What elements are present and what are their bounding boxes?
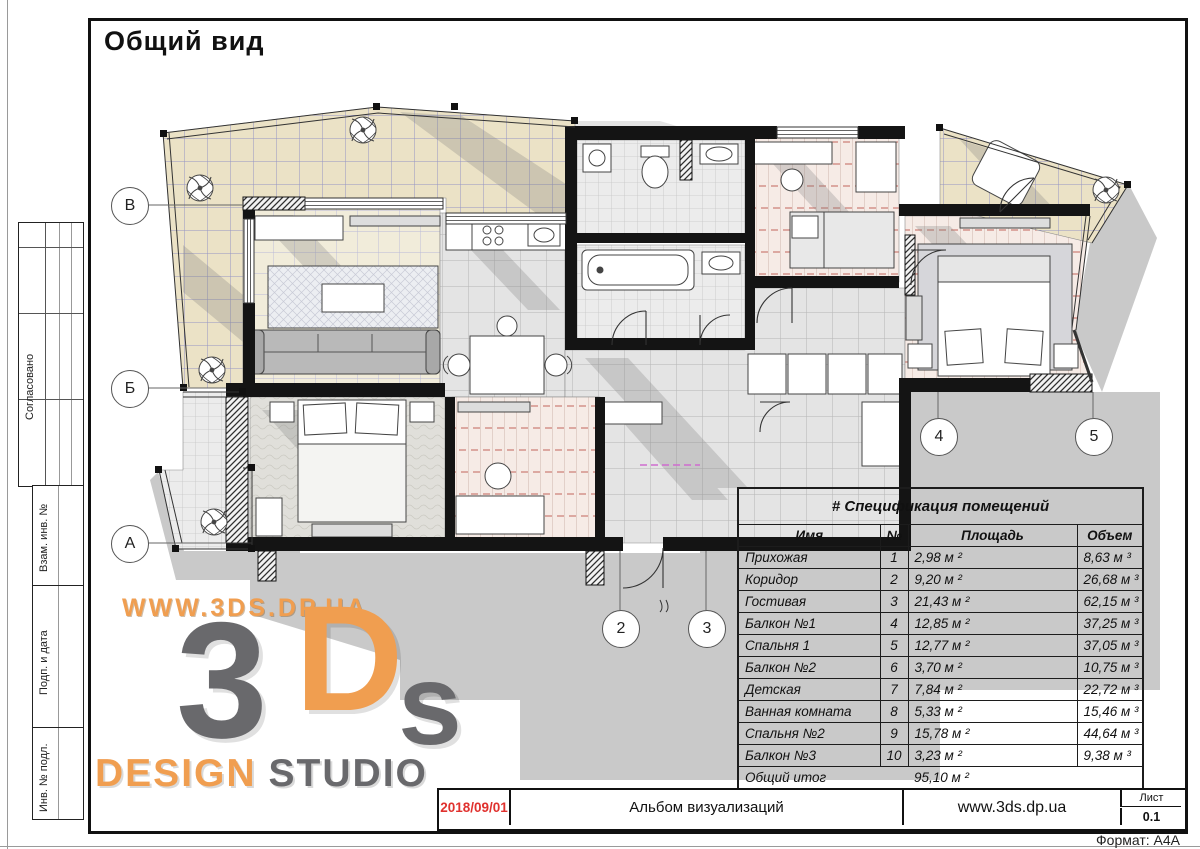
bedroom2-bed: [938, 256, 1050, 376]
logo-s: s: [398, 648, 462, 763]
room-specification-table: # Спецификация помещений Имя № Площадь О…: [737, 487, 1144, 790]
washing-machine: [583, 144, 611, 172]
table-row: Спальня №2915,78 м ²44,64 м ³: [738, 723, 1143, 745]
sheet-number: 0.1: [1120, 808, 1181, 825]
table-row: Спальня 1512,77 м ²37,05 м ³: [738, 635, 1143, 657]
logo-studio-word: STUDIO: [269, 752, 428, 795]
table-row: Балкон №3103,23 м ²9,38 м ³: [738, 745, 1143, 767]
kids-chair: [781, 169, 803, 191]
bedroom1-bed: [298, 400, 406, 522]
hall-wardrobe: [748, 354, 902, 394]
grid-marker-row-v: В: [111, 187, 149, 225]
title-block-album: Альбом визуализаций: [509, 790, 902, 825]
logo-3: 3: [176, 598, 268, 763]
logo-d: D: [295, 583, 403, 733]
bedroom1-bench: [312, 524, 392, 537]
nightstand-left: [908, 344, 932, 368]
table-total-row: Общий итог 95,10 м ²: [738, 767, 1143, 790]
total-area: 95,10 м ²: [908, 767, 1077, 790]
table-row: Балкон №263,70 м ²10,75 м ³: [738, 657, 1143, 679]
hall-shoe-rack: [604, 402, 662, 424]
table-row: Гостивая321,43 м ²62,15 м ³: [738, 591, 1143, 613]
logo-design-word: DESIGN: [95, 752, 257, 795]
bedroom2-shelf: [960, 218, 1050, 228]
table-row: Коридор29,20 м ²26,68 м ³: [738, 569, 1143, 591]
bedroom2-dresser: [906, 296, 922, 340]
washbasin: [700, 144, 738, 164]
bedroom1-dresser: [256, 498, 282, 536]
format-label: Формат: А4А: [980, 832, 1180, 848]
bedroom1-nightstand-l: [270, 402, 294, 422]
sink: [528, 224, 560, 246]
bathtub: [582, 250, 694, 290]
col-header-volume: Объем: [1077, 525, 1143, 547]
desk-chair: [485, 463, 511, 489]
table-row: Балкон №1412,85 м ²37,25 м ³: [738, 613, 1143, 635]
hall-cabinet: [862, 402, 902, 466]
tv-cabinet: [255, 216, 343, 240]
logo-studio-line: DESIGNSTUDIO: [95, 752, 428, 796]
sofa: [250, 330, 440, 374]
table-row: Детская77,84 м ²22,72 м ³: [738, 679, 1143, 701]
toilet: [641, 146, 669, 188]
col-header-area: Площадь: [908, 525, 1077, 547]
title-block: 2018/09/01 Альбом визуализаций www.3ds.d…: [437, 788, 1187, 831]
wall-shelf: [458, 402, 530, 412]
kids-desk: [754, 142, 832, 164]
grid-marker-col-5: 5: [1075, 418, 1113, 456]
page-title: Общий вид: [104, 26, 265, 57]
sheet-label: Лист: [1120, 790, 1181, 807]
col-header-num: №: [880, 525, 908, 547]
stamp-inv-label: Инв. № подл.: [38, 743, 50, 812]
grid-marker-col-4: 4: [920, 418, 958, 456]
stamp-podp-label: Подп. и дата: [38, 630, 50, 695]
col-header-name: Имя: [738, 525, 880, 547]
kids-bed: [790, 212, 894, 268]
grid-marker-row-a: А: [111, 525, 149, 563]
bath-basin: [702, 252, 740, 274]
nightstand-right: [1054, 344, 1078, 368]
grid-marker-col-2: 2: [602, 610, 640, 648]
drawing-sheet: В Б А 2 3 4 5 WWW.3DS.DP.UA 3 D s DESIGN…: [0, 0, 1200, 849]
total-label: Общий итог: [738, 767, 908, 790]
spec-header-row: Имя № Площадь Объем: [738, 525, 1143, 547]
bedroom1-nightstand-r: [410, 402, 434, 422]
spec-table-title: # Спецификация помещений: [738, 488, 1143, 525]
grid-marker-row-b: Б: [111, 370, 149, 408]
grid-marker-col-3: 3: [688, 610, 726, 648]
table-row: Прихожая12,98 м ²8,63 м ³: [738, 547, 1143, 569]
title-block-date: 2018/09/01: [439, 790, 509, 825]
desk: [456, 496, 544, 534]
title-block-site: www.3ds.dp.ua: [902, 790, 1120, 825]
stamp-approved-label: Согласовано: [24, 354, 36, 420]
kids-wardrobe: [856, 142, 896, 192]
table-row: Ванная комната85,33 м ²15,46 м ³: [738, 701, 1143, 723]
stamp-vzam-label: Взам. инв. №: [38, 504, 50, 572]
